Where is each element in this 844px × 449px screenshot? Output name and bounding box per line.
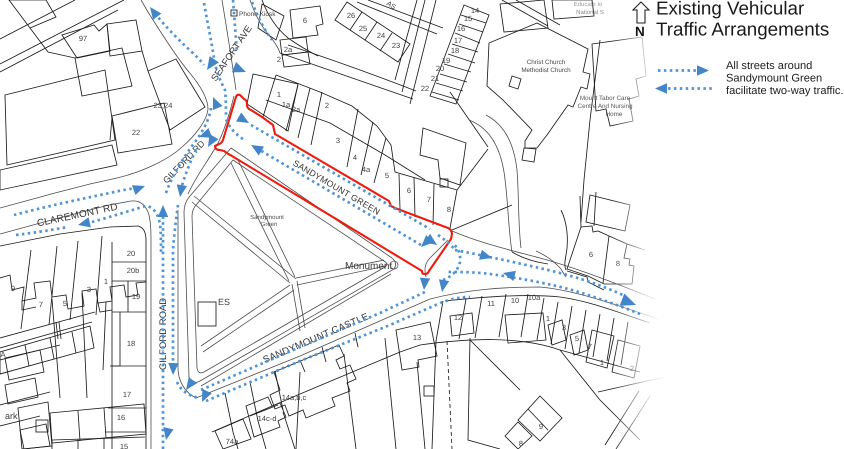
svg-text:97: 97 (79, 34, 87, 43)
svg-text:9: 9 (539, 422, 543, 431)
svg-text:Traffic Arrangements: Traffic Arrangements (656, 18, 829, 39)
svg-text:23,24: 23,24 (154, 101, 173, 110)
svg-text:23: 23 (392, 41, 400, 50)
svg-text:6: 6 (303, 16, 307, 25)
svg-text:20b: 20b (127, 266, 140, 275)
svg-text:6: 6 (407, 186, 411, 195)
svg-text:3: 3 (562, 323, 566, 332)
svg-text:1: 1 (600, 358, 604, 367)
svg-text:5: 5 (575, 334, 579, 343)
svg-text:Christ Church: Christ Church (527, 59, 566, 66)
svg-text:7: 7 (588, 342, 592, 351)
svg-text:5: 5 (63, 299, 67, 308)
svg-text:9: 9 (11, 284, 15, 293)
svg-text:12: 12 (454, 313, 462, 322)
svg-text:1: 1 (104, 277, 108, 286)
svg-text:20: 20 (127, 249, 135, 258)
svg-text:13: 13 (413, 333, 421, 342)
svg-text:3: 3 (336, 136, 340, 145)
svg-text:22: 22 (132, 128, 140, 137)
svg-text:All streets around: All streets around (726, 60, 812, 72)
svg-text:1: 1 (546, 314, 550, 323)
svg-text:Home: Home (606, 111, 623, 118)
svg-text:5: 5 (385, 171, 389, 180)
svg-text:18: 18 (451, 46, 459, 55)
svg-text:14c-d: 14c-d (258, 414, 277, 423)
svg-text:Sandymount: Sandymount (250, 214, 284, 221)
svg-text:17: 17 (454, 36, 462, 45)
svg-text:11: 11 (487, 299, 495, 308)
svg-text:6: 6 (589, 250, 593, 259)
svg-text:National S: National S (576, 9, 604, 16)
svg-text:22: 22 (421, 84, 429, 93)
svg-text:10: 10 (511, 296, 519, 305)
svg-text:2: 2 (277, 55, 281, 64)
svg-text:Existing Vehicular: Existing Vehicular (656, 0, 804, 19)
svg-text:Green: Green (261, 221, 278, 228)
svg-text:14a,b,c: 14a,b,c (282, 393, 307, 402)
svg-text:facilitate two-way traffic.: facilitate two-way traffic. (726, 85, 844, 97)
svg-text:18: 18 (127, 339, 135, 348)
svg-text:3: 3 (87, 285, 91, 294)
svg-text:25: 25 (359, 24, 367, 33)
svg-text:ES: ES (218, 297, 230, 307)
svg-text:1a: 1a (282, 100, 291, 109)
svg-text:Methodist Church: Methodist Church (521, 67, 571, 74)
svg-text:Mount Tabor Care: Mount Tabor Care (580, 95, 631, 102)
svg-text:Centre And Nursing: Centre And Nursing (578, 103, 633, 110)
svg-text:16: 16 (117, 413, 125, 422)
svg-text:8: 8 (447, 205, 451, 214)
svg-text:7: 7 (39, 300, 43, 309)
svg-text:26: 26 (347, 11, 355, 20)
svg-text:17: 17 (123, 390, 131, 399)
svg-text:A: A (0, 350, 5, 359)
svg-text:N: N (635, 24, 645, 39)
svg-text:2a: 2a (292, 105, 301, 114)
svg-text:15: 15 (120, 442, 128, 449)
svg-text:20: 20 (436, 64, 444, 73)
svg-text:ark: ark (5, 411, 18, 421)
svg-text:8: 8 (519, 439, 523, 448)
svg-text:10a: 10a (528, 293, 541, 302)
svg-text:7: 7 (427, 195, 431, 204)
svg-text:2a: 2a (284, 45, 293, 54)
svg-text:74a: 74a (226, 437, 239, 446)
svg-text:4a: 4a (362, 165, 371, 174)
svg-text:Sandymount Green: Sandymount Green (726, 73, 822, 85)
svg-text:16: 16 (457, 24, 465, 33)
svg-text:1: 1 (277, 90, 281, 99)
svg-text:Monument: Monument (345, 261, 392, 272)
svg-text:24: 24 (377, 31, 385, 40)
svg-text:19: 19 (132, 292, 140, 301)
svg-text:21: 21 (431, 74, 439, 83)
svg-text:15: 15 (464, 14, 472, 23)
svg-text:2: 2 (325, 101, 329, 110)
svg-text:4: 4 (353, 153, 357, 162)
svg-text:Educate Io: Educate Io (574, 1, 603, 8)
